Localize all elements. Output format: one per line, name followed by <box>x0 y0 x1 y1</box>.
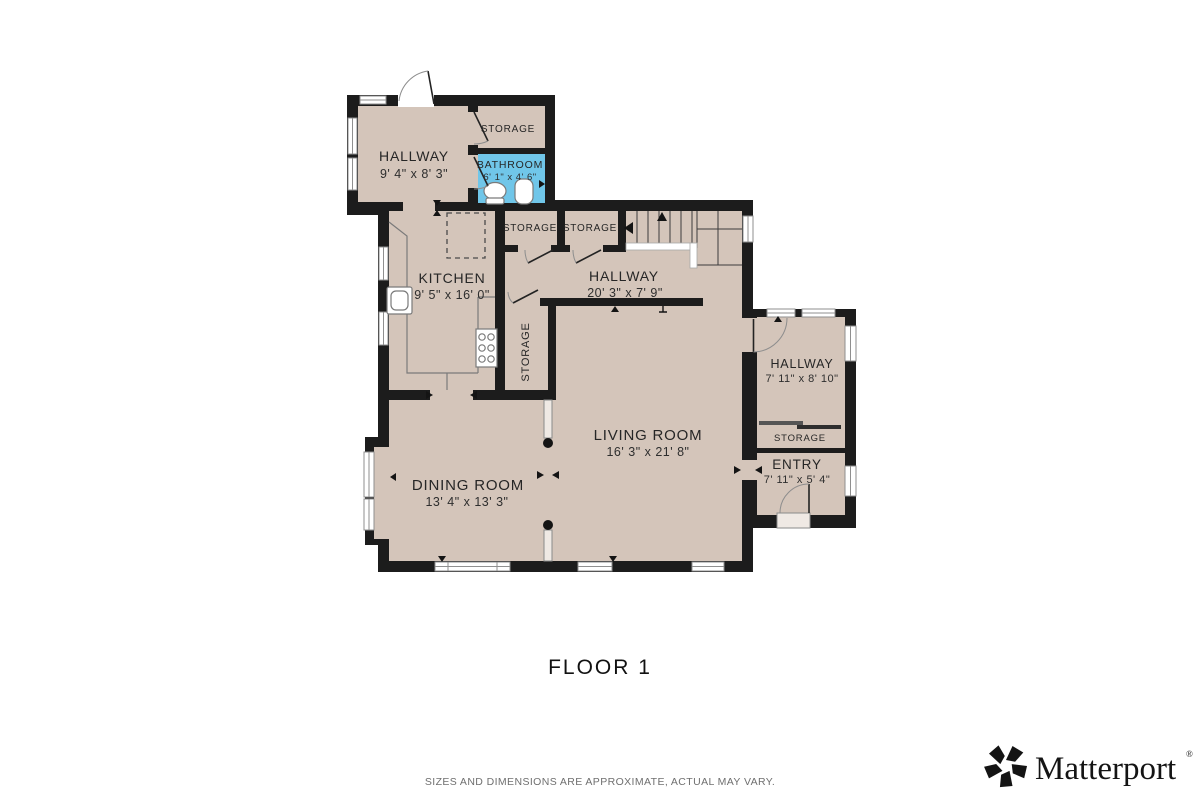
wall-kitchen-dining-west <box>378 390 430 400</box>
wall-storage-tall-south <box>495 390 556 400</box>
column-north <box>543 438 553 448</box>
matterport-logo: Matterport ® <box>980 743 1193 792</box>
dims-hallway-main: 20' 3" x 7' 9" <box>587 286 663 300</box>
label-storage-nw: STORAGE <box>481 124 535 135</box>
room-bay-floor <box>374 447 395 539</box>
label-hallway-e: HALLWAY <box>770 357 833 371</box>
opening-exterior-door-nw <box>398 94 434 107</box>
dims-hallway-nw: 9' 4" x 8' 3" <box>380 167 448 181</box>
stair-railing-return <box>690 243 697 268</box>
dims-hallway-e: 7' 11" x 8' 10" <box>765 373 838 385</box>
matterport-pinwheel-icon <box>980 743 1030 792</box>
dims-entry: 7' 11" x 5' 4" <box>764 474 831 486</box>
dims-bathroom: 6' 1" x 4' 6" <box>483 172 536 183</box>
half-wall-north <box>544 400 552 438</box>
storage-e-sliding-door-panel <box>759 421 803 425</box>
label-storage-e: STORAGE <box>774 433 826 444</box>
storage-e-sliding-door-panel <box>797 425 841 429</box>
wall-closet-mid-south <box>551 245 570 252</box>
label-storage-b: STORAGE <box>563 223 617 234</box>
wall-kitchen-east <box>495 211 505 396</box>
stair-railing <box>626 243 692 250</box>
dims-dining-room: 13' 4" x 13' 3" <box>425 495 508 509</box>
label-hallway-main: HALLWAY <box>589 268 659 284</box>
dims-kitchen: 9' 5" x 16' 0" <box>414 288 490 302</box>
opening-hallway-kitchen <box>403 202 435 212</box>
label-hallway-nw: HALLWAY <box>379 148 449 164</box>
column-south <box>543 520 553 530</box>
floor-title: FLOOR 1 <box>548 656 652 679</box>
label-living-room: LIVING ROOM <box>594 427 703 444</box>
label-storage-tall: STORAGE <box>520 322 532 381</box>
label-storage-a: STORAGE <box>503 223 557 234</box>
half-wall-south <box>544 530 552 561</box>
brand-wordmark: Matterport <box>1035 751 1176 787</box>
dims-living-room: 16' 3" x 21' 8" <box>606 445 689 459</box>
registered-mark: ® <box>1186 749 1193 759</box>
room-hallway-e-floor <box>757 317 845 426</box>
floor-plan-canvas: HALLWAY 9' 4" x 8' 3" STORAGE BATHROOM 6… <box>0 0 1200 800</box>
toilet-tank <box>486 198 504 204</box>
wall-living-west <box>548 298 556 400</box>
wall-closet-b-south <box>603 245 626 252</box>
opening-living-hallway-e <box>739 318 759 352</box>
disclaimer-text: SIZES AND DIMENSIONS ARE APPROXIMATE, AC… <box>425 776 775 788</box>
label-entry: ENTRY <box>772 457 822 472</box>
wall-closet-a-south <box>495 245 518 252</box>
label-kitchen: KITCHEN <box>418 270 485 286</box>
entry-door-threshold <box>777 513 810 528</box>
wall-closet-stairs <box>618 211 626 248</box>
floor-plan-page: HALLWAY 9' 4" x 8' 3" STORAGE BATHROOM 6… <box>0 0 1200 800</box>
label-bathroom: BATHROOM <box>477 159 543 171</box>
label-dining-room: DINING ROOM <box>412 477 524 494</box>
